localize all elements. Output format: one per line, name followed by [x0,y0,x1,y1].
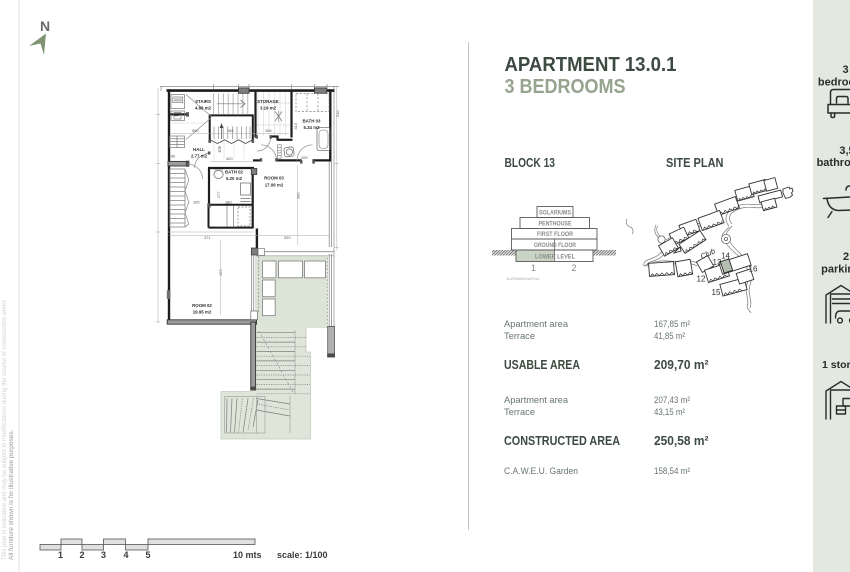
svg-text:209,70 m²: 209,70 m² [654,357,709,372]
svg-text:ROOM 03: ROOM 03 [264,176,284,181]
svg-text:43,15 m²: 43,15 m² [654,407,685,418]
svg-text:189: 189 [225,200,232,205]
svg-text:3 BEDROOMS: 3 BEDROOMS [505,76,626,98]
svg-text:C.A.W.E.U. Garden: C.A.W.E.U. Garden [504,466,578,477]
svg-text:bedrooms: bedrooms [818,77,850,89]
svg-text:17.06 m2: 17.06 m2 [265,183,284,188]
svg-text:16: 16 [749,265,758,274]
svg-text:BATH 03: BATH 03 [303,119,322,124]
svg-text:Apartment area: Apartment area [504,395,569,406]
svg-text:105: 105 [193,200,200,205]
svg-text:310: 310 [293,122,298,129]
svg-text:2: 2 [571,263,576,273]
svg-text:GROUND FLOOR: GROUND FLOOR [534,243,577,249]
svg-text:BLOCK 13: BLOCK 13 [505,156,556,170]
svg-text:3,5: 3,5 [839,145,850,157]
svg-text:205: 205 [301,155,308,160]
svg-text:STORAGE: STORAGE [257,99,279,104]
svg-text:5: 5 [146,550,151,560]
svg-text:158,54 m²: 158,54 m² [654,466,690,477]
svg-text:parking: parking [821,264,850,276]
svg-text:SITE PLAN: SITE PLAN [666,156,724,170]
svg-text:FIRST FLOOR: FIRST FLOOR [537,232,574,238]
svg-text:PENTHOUSE: PENTHOUSE [539,222,572,228]
svg-text:HALL: HALL [193,147,205,152]
svg-text:4: 4 [124,550,129,560]
svg-text:USABLE AREA: USABLE AREA [504,357,580,372]
svg-text:All furniture shown is for ill: All furniture shown is for illustrative … [8,429,15,560]
svg-text:4.86 m2: 4.86 m2 [195,106,212,111]
svg-text:420: 420 [226,156,233,161]
svg-text:510: 510 [335,110,340,117]
svg-text:14: 14 [721,252,730,261]
svg-text:590: 590 [192,128,199,133]
svg-text:LOWER LEVEL: LOWER LEVEL [535,255,575,261]
svg-text:SOLARIUMS: SOLARIUMS [539,211,571,217]
svg-text:13: 13 [713,258,722,267]
svg-text:5.34 m2: 5.34 m2 [303,125,320,130]
svg-text:2: 2 [80,550,85,560]
svg-text:156: 156 [265,128,272,133]
svg-text:165: 165 [227,128,234,133]
svg-text:1 storage: 1 storage [822,359,850,371]
svg-text:ROOM 02: ROOM 02 [192,303,212,308]
svg-text:207,43 m²: 207,43 m² [654,395,690,406]
svg-text:5.20 m2: 5.20 m2 [226,176,243,181]
svg-text:15: 15 [712,288,721,297]
svg-text:12: 12 [697,275,706,284]
svg-text:3.19 m2: 3.19 m2 [260,106,277,111]
svg-text:Terrace: Terrace [504,331,535,342]
svg-text:Apartment area: Apartment area [504,319,569,330]
svg-text:scale: 1/100: scale: 1/100 [277,550,328,560]
svg-text:80: 80 [171,154,176,159]
svg-text:2.77 m2: 2.77 m2 [191,154,208,159]
svg-text:3: 3 [101,550,106,560]
svg-text:10 mts: 10 mts [233,550,262,560]
svg-text:277: 277 [216,192,221,199]
svg-text:Terrace: Terrace [504,407,535,418]
svg-text:1: 1 [531,263,536,273]
svg-text:BATH 02: BATH 02 [225,170,244,175]
svg-text:105: 105 [217,145,222,153]
svg-text:19.95 m2: 19.95 m2 [193,310,212,315]
svg-text:250,58 m²: 250,58 m² [654,433,709,448]
svg-text:1: 1 [58,550,63,560]
svg-text:B-MTA506494aFGx2: B-MTA506494aFGx2 [507,277,540,281]
svg-text:STAIRS: STAIRS [195,99,211,104]
svg-text:CONSTRUCTED AREA: CONSTRUCTED AREA [504,433,620,448]
svg-text:2: 2 [843,251,849,263]
svg-text:bathrooms: bathrooms [817,157,850,169]
svg-text:167,85 m²: 167,85 m² [654,319,690,330]
svg-text:N: N [40,18,50,34]
svg-text:41,85 m²: 41,85 m² [654,331,685,342]
svg-text:3: 3 [842,64,848,76]
svg-text:APARTMENT 13.0.1: APARTMENT 13.0.1 [505,54,677,76]
